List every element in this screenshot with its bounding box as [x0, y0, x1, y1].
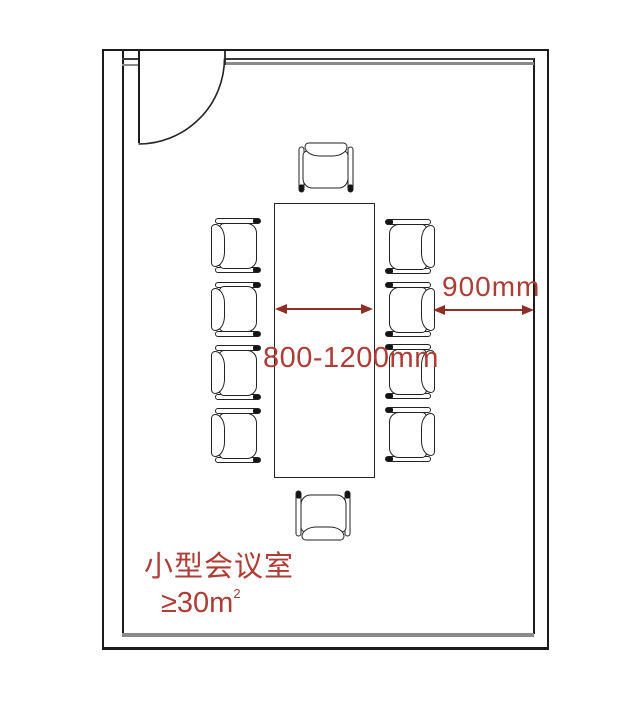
- room-name-label: 小型会议室: [144, 553, 294, 582]
- table-width-dimension-label: 800-1200mm: [263, 344, 439, 373]
- room-area-label: ≥30m2: [161, 587, 241, 618]
- clearance-dimension-label: 900mm: [442, 273, 540, 301]
- arrow-head-right-icon: [361, 304, 373, 314]
- floor-plan-canvas: 900mm 800-1200mm 小型会议室 ≥30m2: [0, 0, 640, 723]
- room-area-value: ≥30m: [161, 587, 233, 619]
- room-area-exponent: 2: [233, 586, 240, 601]
- arrow-shaft: [283, 308, 365, 310]
- wall-clearance-dimension-arrow: [433, 305, 534, 315]
- arrow-shaft: [441, 309, 526, 311]
- table-width-dimension-arrow: [275, 304, 373, 314]
- arrow-head-right-icon: [522, 305, 534, 315]
